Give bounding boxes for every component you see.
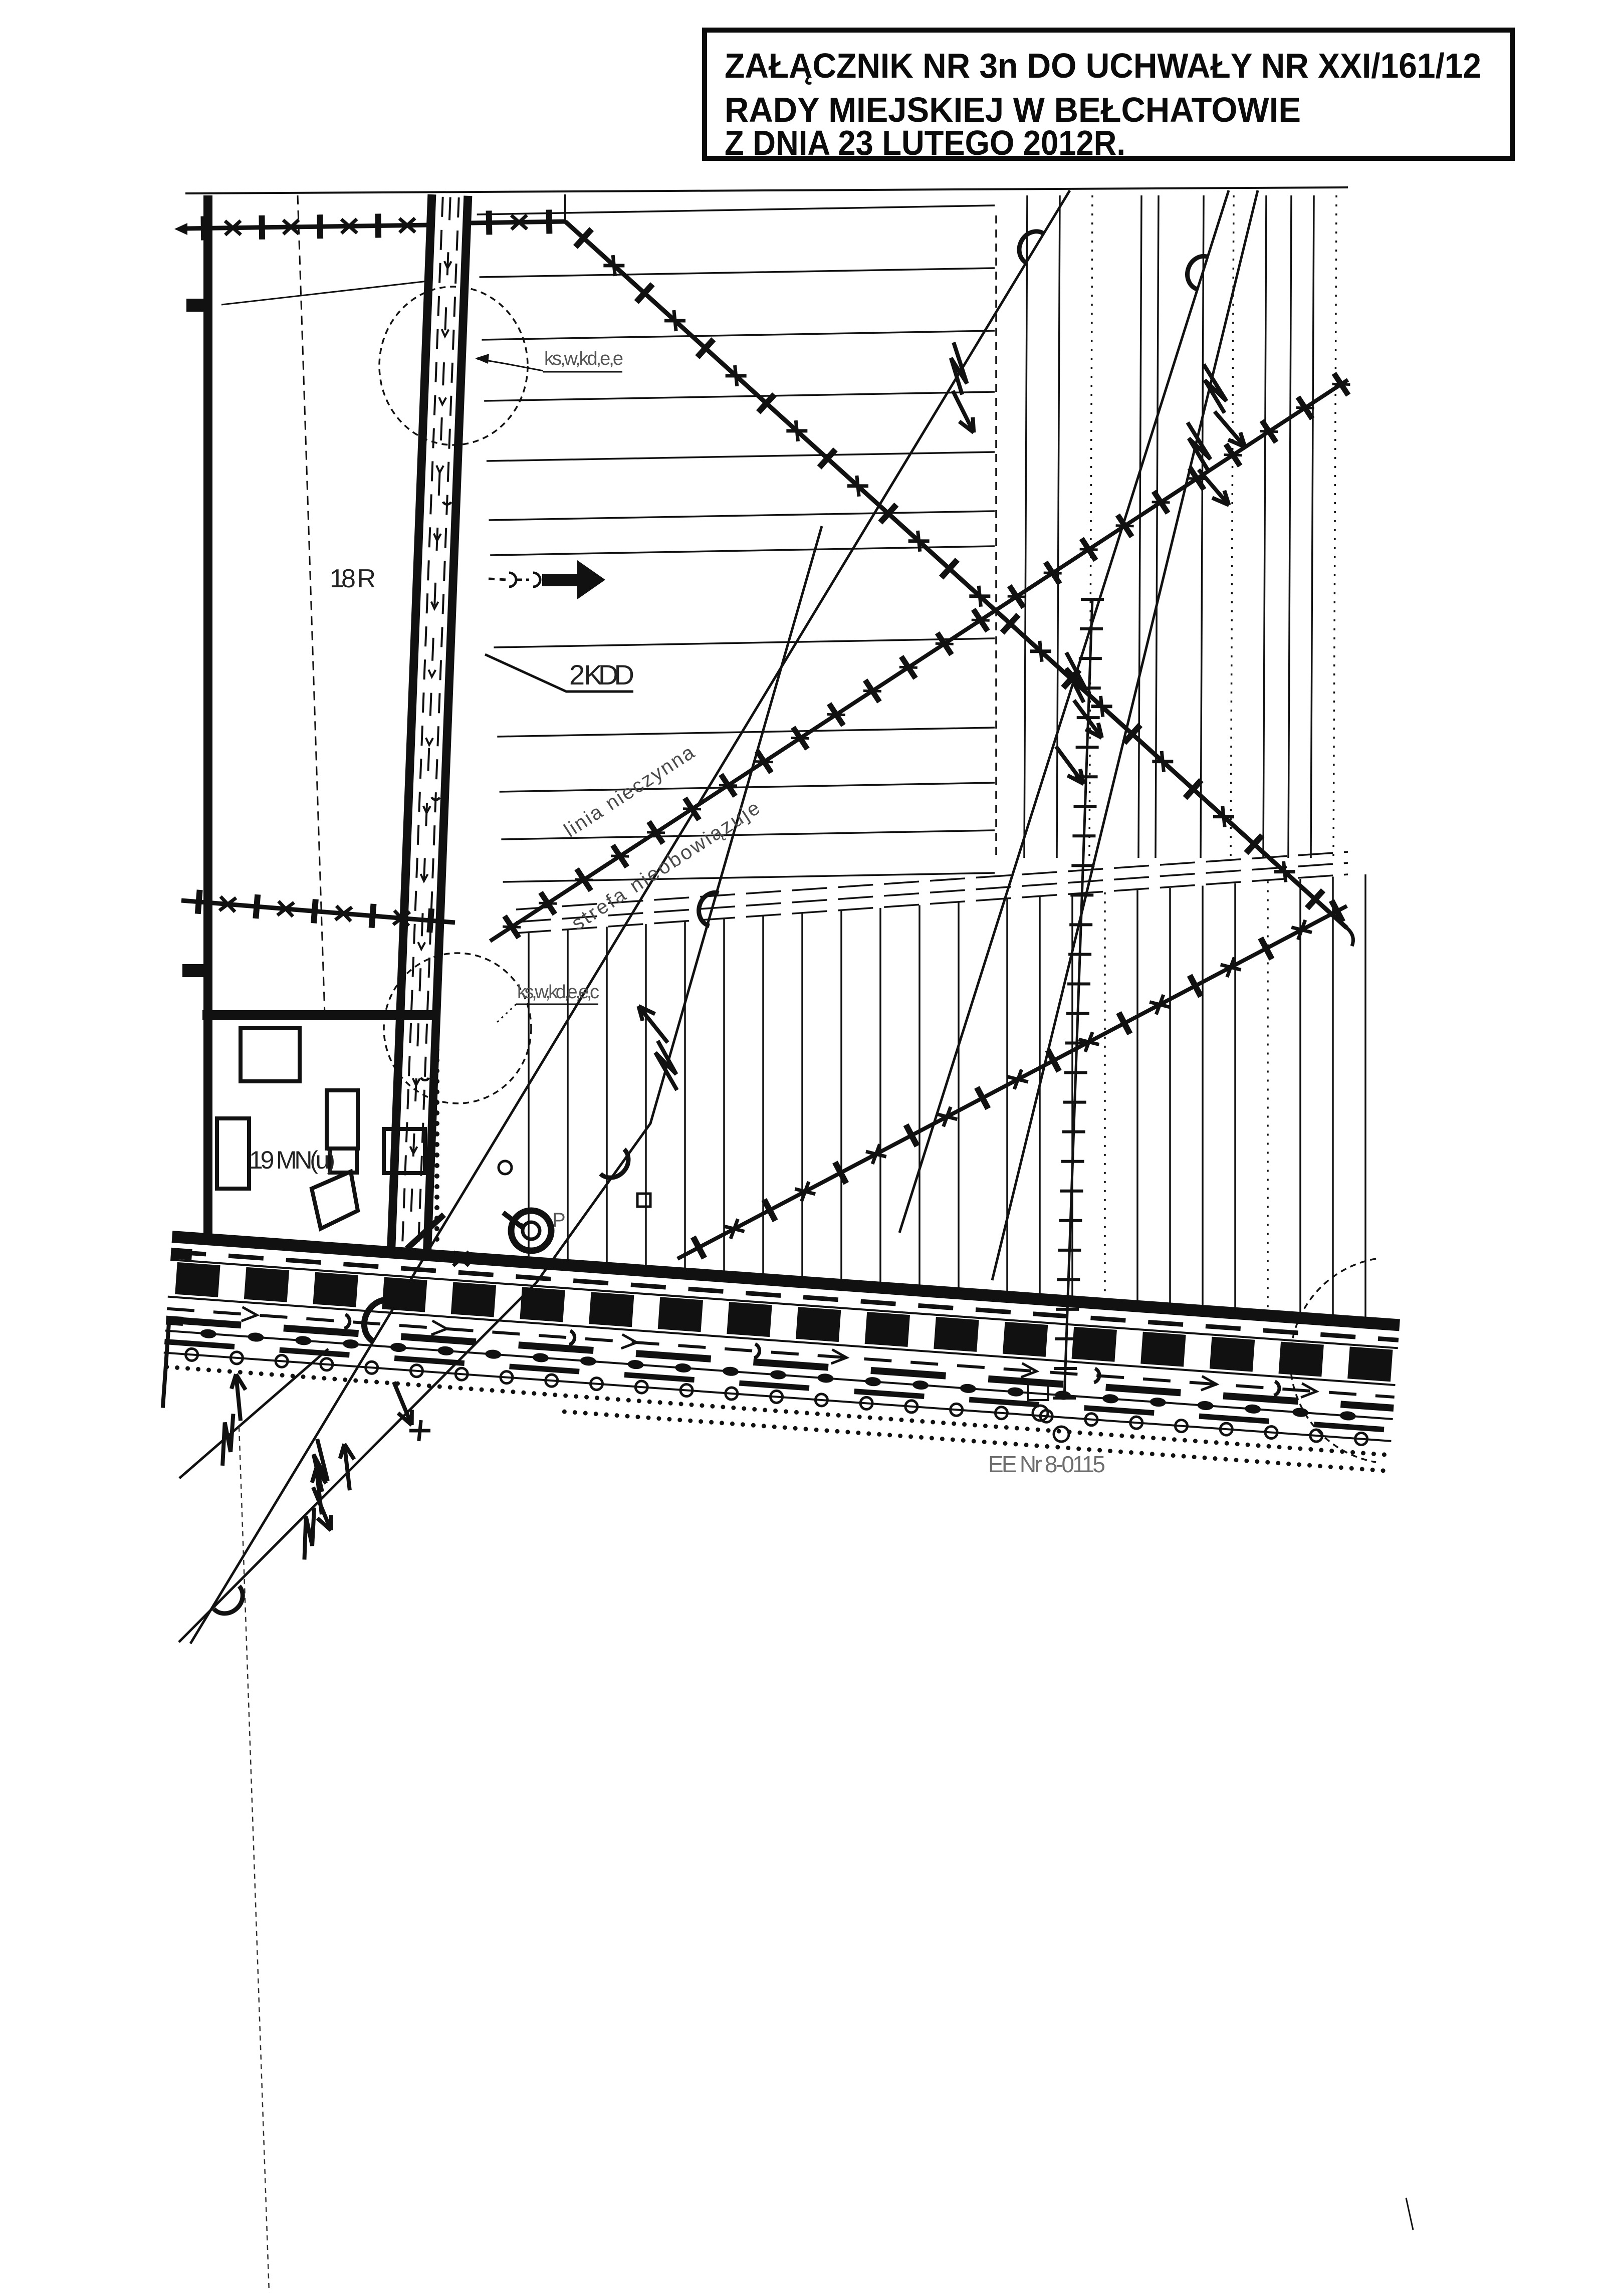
zone-18r-label: 18 R	[330, 564, 376, 593]
inactive-line-label: linia nieczynna	[560, 741, 699, 842]
title-line-1: ZAŁĄCZNIK NR 3n DO UCHWAŁY NR XXI/161/12	[725, 46, 1481, 85]
scanned-zoning-map-page: ZAŁĄCZNIK NR 3n DO UCHWAŁY NR XXI/161/12…	[0, 0, 1610, 2296]
map-canvas: ZAŁĄCZNIK NR 3n DO UCHWAŁY NR XXI/161/12…	[0, 0, 1610, 2296]
road-2kdd-corridor	[391, 194, 468, 1253]
utilities-mid-label: ks,w,kd,e,e,c	[517, 982, 599, 1003]
road-2kdd-label: 2 KDD	[569, 659, 634, 691]
zone-19mnu-label: 19 MN(u)	[249, 1146, 335, 1174]
power-lines	[179, 190, 1258, 2292]
title-block: ZAŁĄCZNIK NR 3n DO UCHWAŁY NR XXI/161/12…	[705, 30, 1512, 162]
power-line-id-label: EE Nr 8-0115	[988, 1451, 1105, 1477]
pump-symbol-label: P	[552, 1209, 566, 1231]
utilities-top-label: ks,w,kd,e,e	[544, 348, 623, 369]
title-line-3: Z DNIA 23 LUTEGO 2012R.	[725, 123, 1125, 162]
